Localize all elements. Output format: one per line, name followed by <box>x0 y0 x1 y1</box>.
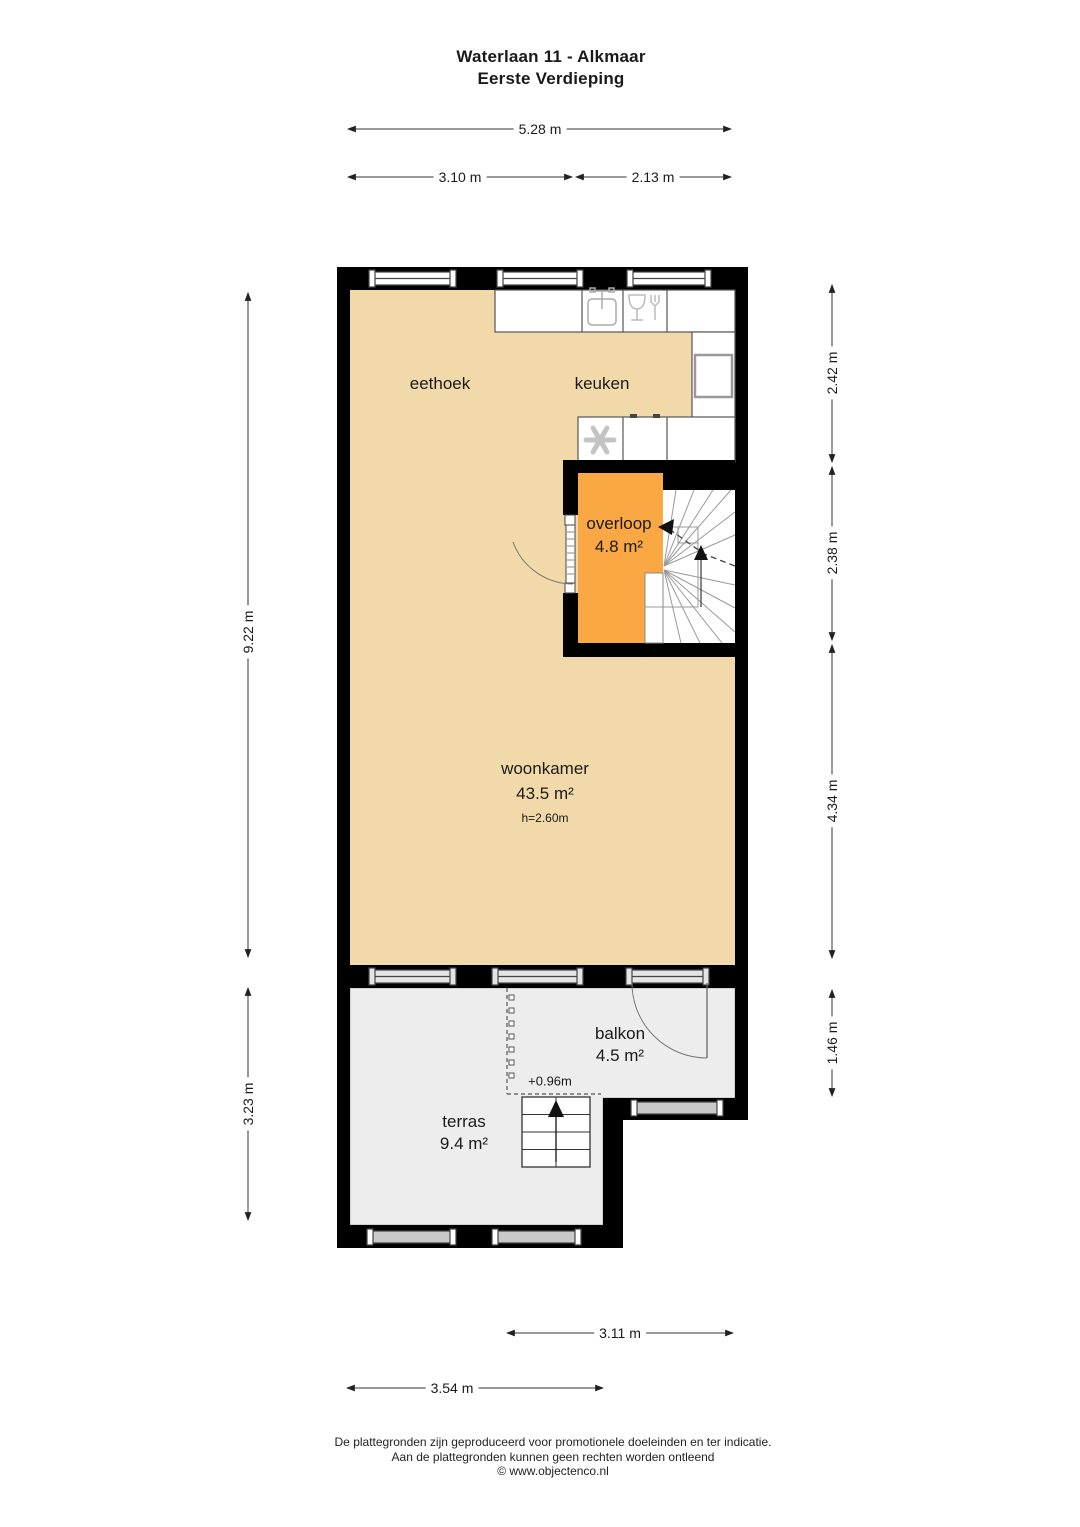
dim-right-mid: 2.38 m <box>824 527 840 580</box>
room-area-terras: 9.4 m² <box>440 1134 488 1154</box>
page-title: Waterlaan 11 - Alkmaar <box>456 47 645 67</box>
dim-top-right: 2.13 m <box>627 169 680 185</box>
dim-top-total: 5.28 m <box>514 121 567 137</box>
dim-right-bottom: 1.46 m <box>824 1017 840 1070</box>
room-area-overloop: 4.8 m² <box>595 537 643 557</box>
stairwell <box>663 490 735 643</box>
room-area-woonkamer: 43.5 m² <box>516 784 574 804</box>
window-band-south <box>369 968 709 985</box>
up-arrow-stairs <box>522 1097 590 1167</box>
level-note-terras: +0.96m <box>528 1074 572 1089</box>
floorplan-page: Waterlaan 11 - Alkmaar Eerste Verdieping… <box>0 0 1080 1527</box>
dim-bottom-outer: 3.54 m <box>426 1380 479 1396</box>
footer-disclaimer-1: De plattegronden zijn geproduceerd voor … <box>335 1435 772 1449</box>
dim-left-lower: 3.23 m <box>240 1078 256 1131</box>
room-label-woonkamer: woonkamer <box>501 759 589 779</box>
footer-disclaimer-2: Aan de plattegronden kunnen geen rechten… <box>392 1450 715 1464</box>
room-label-overloop: overloop <box>586 514 651 534</box>
dim-top-left: 3.10 m <box>434 169 487 185</box>
room-label-terras: terras <box>442 1112 485 1132</box>
footer-copyright: © www.objectenco.nl <box>497 1464 609 1478</box>
appliance-square <box>695 355 732 397</box>
page-subtitle: Eerste Verdieping <box>477 69 624 89</box>
dim-right-lower: 4.34 m <box>824 775 840 828</box>
dim-left-upper: 9.22 m <box>240 606 256 659</box>
dim-right-top: 2.42 m <box>824 347 840 400</box>
room-label-keuken: keuken <box>575 374 630 394</box>
room-height-woonkamer: h=2.60m <box>521 811 568 825</box>
dim-bottom-inner: 3.11 m <box>594 1325 646 1341</box>
room-label-eethoek: eethoek <box>410 374 471 394</box>
room-area-balkon: 4.5 m² <box>596 1046 644 1066</box>
room-label-balkon: balkon <box>595 1024 645 1044</box>
window-band-top <box>369 270 711 287</box>
